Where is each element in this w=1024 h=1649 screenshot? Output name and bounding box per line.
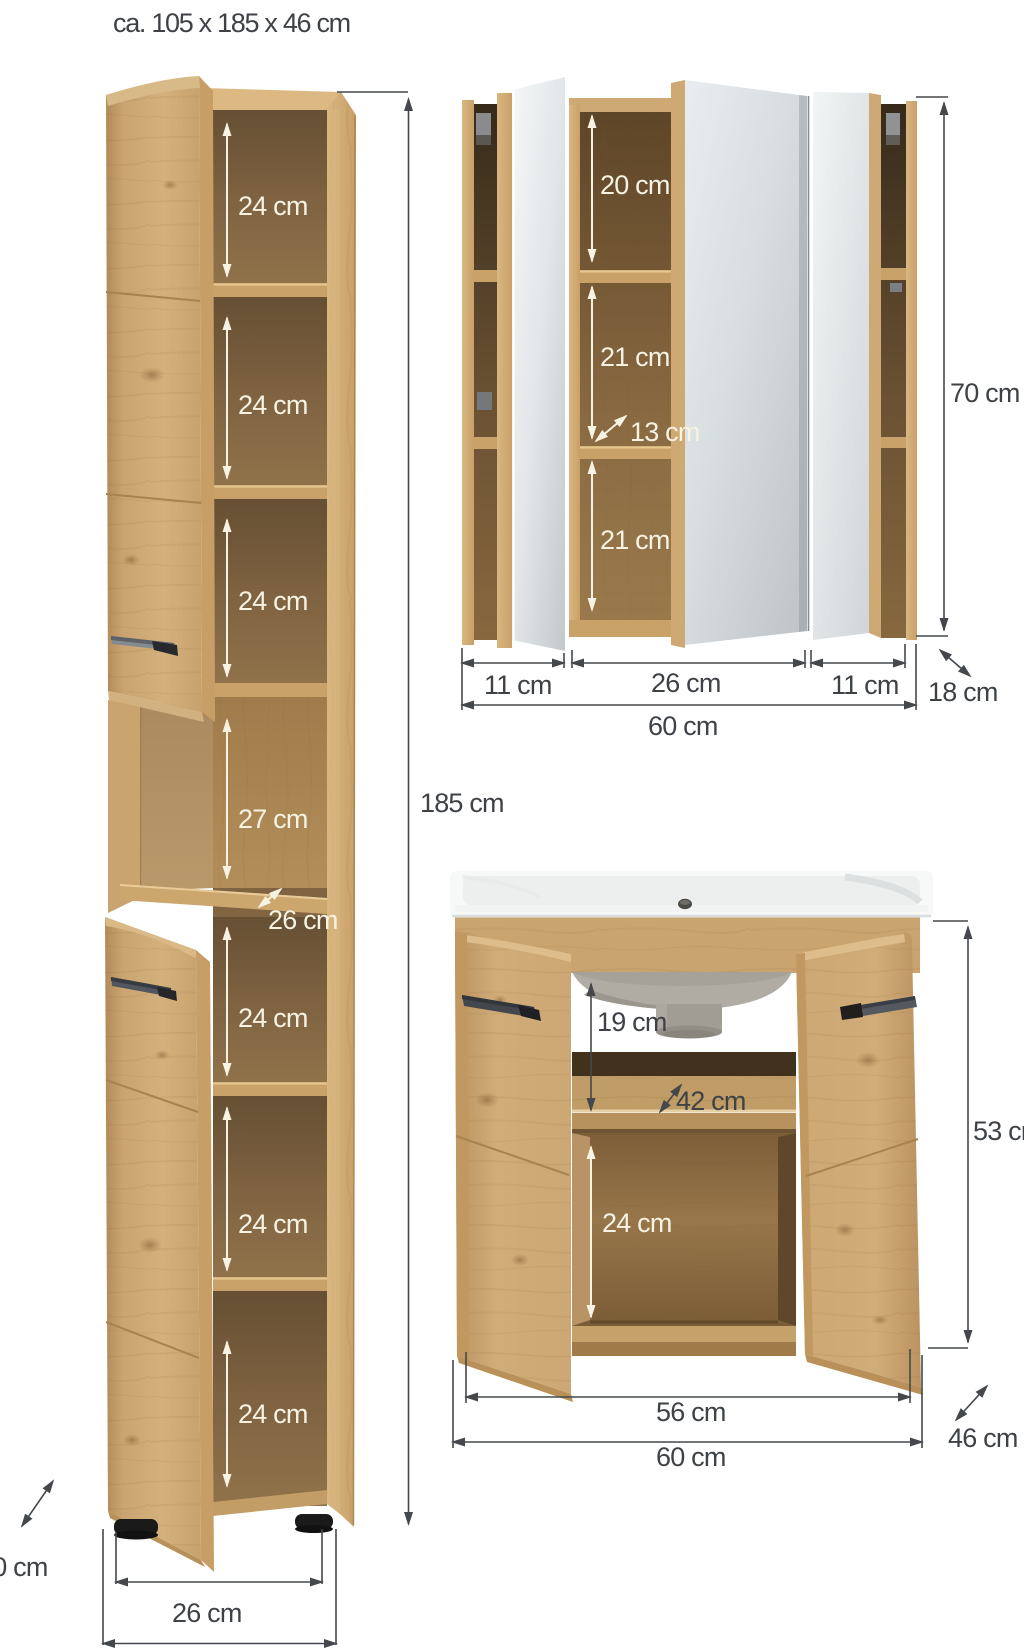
svg-text:24 cm: 24 cm bbox=[238, 1209, 308, 1239]
svg-text:13 cm: 13 cm bbox=[630, 417, 700, 447]
svg-text:24 cm: 24 cm bbox=[238, 390, 308, 420]
svg-text:18 cm: 18 cm bbox=[928, 677, 998, 707]
svg-text:19 cm: 19 cm bbox=[597, 1007, 667, 1037]
svg-text:ca. 105 x 185 x 46 cm: ca. 105 x 185 x 46 cm bbox=[113, 8, 350, 38]
svg-text:30 cm: 30 cm bbox=[0, 1552, 48, 1582]
svg-text:53 cm: 53 cm bbox=[973, 1116, 1024, 1146]
svg-text:24 cm: 24 cm bbox=[238, 586, 308, 616]
svg-text:70 cm: 70 cm bbox=[950, 378, 1020, 408]
svg-text:60 cm: 60 cm bbox=[656, 1442, 726, 1472]
svg-text:26 cm: 26 cm bbox=[172, 1598, 242, 1628]
svg-text:11 cm: 11 cm bbox=[831, 670, 899, 700]
svg-text:185 cm: 185 cm bbox=[420, 788, 504, 818]
svg-text:21 cm: 21 cm bbox=[600, 525, 670, 555]
svg-text:24 cm: 24 cm bbox=[238, 1399, 308, 1429]
svg-text:42 cm: 42 cm bbox=[676, 1086, 746, 1116]
svg-text:24 cm: 24 cm bbox=[602, 1208, 672, 1238]
svg-text:11 cm: 11 cm bbox=[484, 670, 552, 700]
svg-text:46 cm: 46 cm bbox=[948, 1423, 1018, 1453]
svg-text:26 cm: 26 cm bbox=[651, 668, 721, 698]
svg-text:56 cm: 56 cm bbox=[656, 1397, 726, 1427]
svg-text:60 cm: 60 cm bbox=[648, 711, 718, 741]
svg-text:21 cm: 21 cm bbox=[600, 342, 670, 372]
svg-text:27 cm: 27 cm bbox=[238, 804, 308, 834]
svg-text:26 cm: 26 cm bbox=[268, 905, 338, 935]
svg-text:20 cm: 20 cm bbox=[600, 170, 670, 200]
svg-text:24 cm: 24 cm bbox=[238, 191, 308, 221]
svg-text:24 cm: 24 cm bbox=[238, 1003, 308, 1033]
